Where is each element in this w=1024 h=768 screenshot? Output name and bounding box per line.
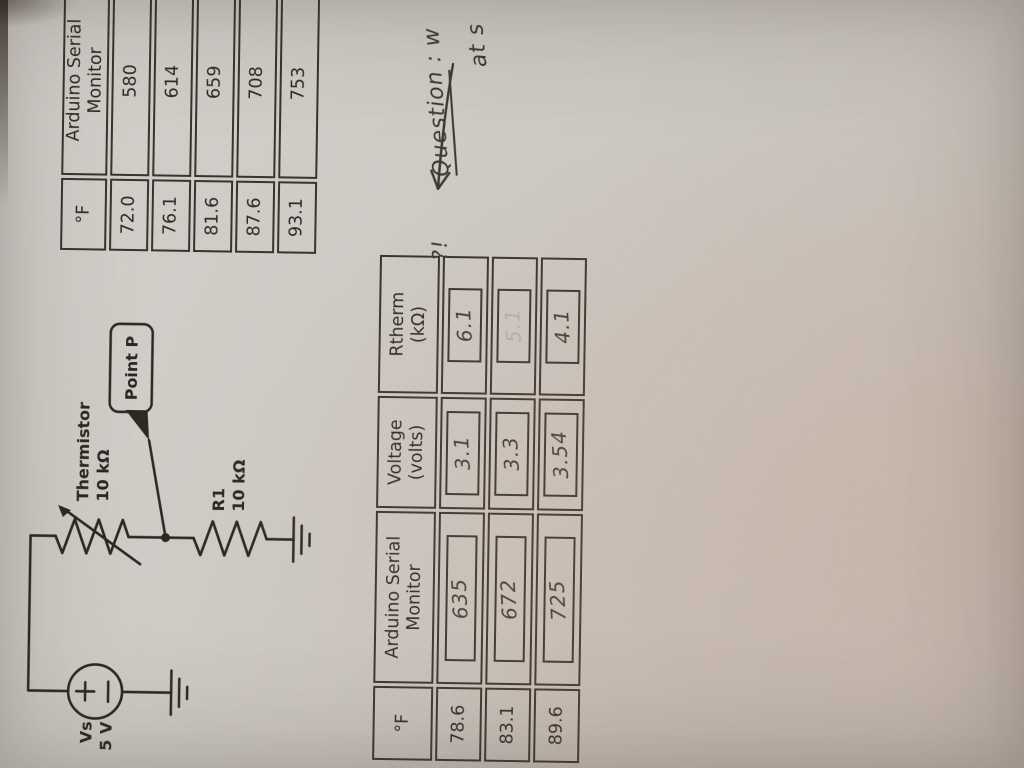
answer-box: 6.1 bbox=[447, 288, 482, 363]
handwritten-voltage: 3.1 bbox=[450, 435, 475, 471]
rotated-page: Vs 5 V Thermistor 10 kΩ Point P bbox=[0, 0, 1024, 768]
plus-terminal-icon bbox=[76, 682, 94, 700]
answer-box: 635 bbox=[444, 535, 477, 661]
t1-cell-adc: 659 bbox=[194, 0, 236, 178]
circuit-diagram: Vs 5 V Thermistor 10 kΩ Point P bbox=[0, 290, 341, 765]
thermistor-arrowhead-icon bbox=[58, 505, 71, 517]
handwritten-voltage: 3.54 bbox=[548, 430, 574, 480]
source-name-label: Vs bbox=[76, 721, 95, 743]
resistor-r1-icon bbox=[193, 521, 267, 556]
handwritten-adc: 672 bbox=[497, 578, 523, 620]
t2-header-voltage-line1: Voltage bbox=[386, 419, 408, 485]
measurement-table: °F Arduino Serial Monitor Voltage (volts… bbox=[372, 255, 587, 763]
handwritten-adc: 725 bbox=[546, 579, 572, 621]
t2-cell-adc: 725 bbox=[534, 513, 583, 686]
handwritten-adc: 635 bbox=[448, 577, 474, 619]
t1-cell-adc: 708 bbox=[236, 0, 278, 178]
t2-cell-rtherm: 6.1 bbox=[441, 256, 489, 395]
source-value-label: 5 V bbox=[96, 721, 115, 751]
t2-header-voltage-line2: (volts) bbox=[406, 425, 428, 481]
handwritten-rtherm: 4.1 bbox=[550, 309, 575, 345]
t2-cell-voltage: 3.1 bbox=[439, 397, 487, 510]
t1-cell-adc: 614 bbox=[152, 0, 194, 177]
thermistor-name-label: Thermistor bbox=[73, 402, 94, 502]
answer-box: 672 bbox=[493, 536, 526, 662]
photo-of-worksheet: Vs 5 V Thermistor 10 kΩ Point P bbox=[0, 0, 1024, 768]
question-line1-rest: : w bbox=[419, 26, 447, 71]
t2-cell-f: 78.6 bbox=[435, 687, 482, 762]
pointp-pointer-icon bbox=[125, 410, 149, 440]
handwritten-note: ?! Question : w at s bbox=[400, 0, 535, 270]
answer-box: 5.1 bbox=[496, 289, 531, 364]
t2-header-rtherm: Rtherm (kΩ) bbox=[378, 255, 440, 394]
t2-header-rtherm-line1: Rtherm bbox=[388, 292, 410, 357]
t2-cell-f: 89.6 bbox=[533, 688, 580, 763]
t1-cell-f: 72.0 bbox=[109, 179, 149, 252]
question-line2: at s bbox=[463, 22, 493, 69]
t2-cell-voltage: 3.54 bbox=[537, 398, 585, 511]
t2-cell-adc: 635 bbox=[436, 512, 485, 685]
ground-icon bbox=[171, 671, 188, 715]
t2-cell-f: 83.1 bbox=[484, 688, 531, 763]
wire-source-ground bbox=[122, 692, 171, 693]
answer-box: 4.1 bbox=[545, 290, 580, 365]
handwritten-rtherm-erased: 5.1 bbox=[501, 308, 526, 344]
answer-box: 3.1 bbox=[445, 411, 480, 496]
t2-cell-rtherm: 4.1 bbox=[539, 257, 587, 396]
t2-header-adc: Arduino Serial Monitor bbox=[373, 511, 436, 684]
t1-cell-adc: 753 bbox=[278, 0, 320, 179]
t2-cell-voltage: 3.3 bbox=[488, 398, 536, 511]
t1-cell-f: 87.6 bbox=[235, 181, 275, 254]
t2-cell-adc: 672 bbox=[485, 513, 534, 686]
r1-value-label: 10 kΩ bbox=[229, 459, 249, 512]
t1-cell-f: 76.1 bbox=[151, 179, 191, 252]
t2-header-rtherm-line2: (kΩ) bbox=[409, 306, 430, 343]
page-content: Vs 5 V Thermistor 10 kΩ Point P bbox=[0, 0, 1024, 768]
wire-top bbox=[28, 535, 70, 691]
answer-box: 3.54 bbox=[543, 413, 578, 498]
t2-header-f: °F bbox=[372, 686, 433, 761]
t1-cell-f: 93.1 bbox=[277, 181, 317, 254]
thermistor-value-label: 10 kΩ bbox=[93, 449, 113, 502]
t1-header-f: °F bbox=[60, 178, 107, 251]
t1-cell-f: 81.6 bbox=[193, 180, 233, 253]
answer-box: 3.3 bbox=[494, 412, 529, 497]
ground-icon-2 bbox=[293, 518, 310, 562]
handwritten-voltage: 3.3 bbox=[499, 436, 524, 472]
t2-header-voltage: Voltage (volts) bbox=[376, 396, 438, 509]
pointp-label: Point P bbox=[122, 335, 142, 400]
pointp-leader-line bbox=[148, 440, 168, 537]
t1-header-adc: Arduino Serial Monitor bbox=[61, 0, 110, 176]
answer-box: 725 bbox=[542, 537, 575, 663]
r1-name-label: R1 bbox=[209, 488, 228, 512]
handwritten-rtherm: 6.1 bbox=[452, 307, 477, 343]
calibration-table: °F Arduino Serial Monitor 72.0 580 76.1 … bbox=[60, 0, 320, 254]
t1-cell-adc: 580 bbox=[110, 0, 152, 176]
t2-cell-rtherm-erased: 5.1 bbox=[490, 257, 538, 396]
